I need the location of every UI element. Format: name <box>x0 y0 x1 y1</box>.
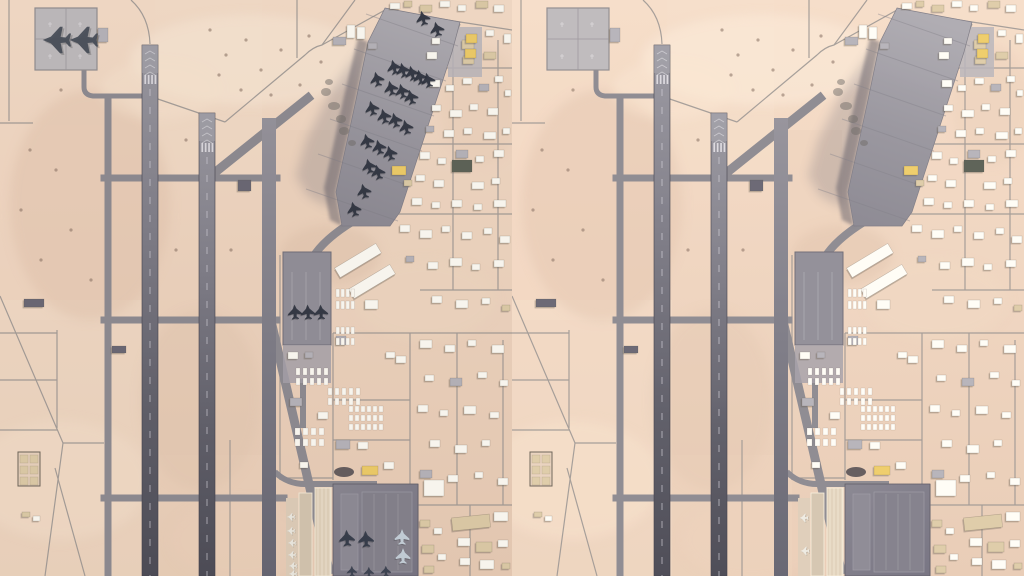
satellite-image-before <box>0 0 512 576</box>
dark-stain <box>846 467 866 477</box>
satellite-panel-before <box>0 0 512 576</box>
parallel-taxiway <box>262 118 276 576</box>
parallel-taxiway <box>774 118 788 576</box>
hangar-strips <box>798 488 843 576</box>
mid-apron <box>795 252 843 383</box>
satellite-panel-after <box>512 0 1024 576</box>
northwest-parking-pad <box>547 8 609 70</box>
satellite-comparison <box>0 0 1024 576</box>
dark-stain <box>334 467 354 477</box>
south-apron <box>845 484 930 576</box>
satellite-image-after <box>512 0 1024 576</box>
